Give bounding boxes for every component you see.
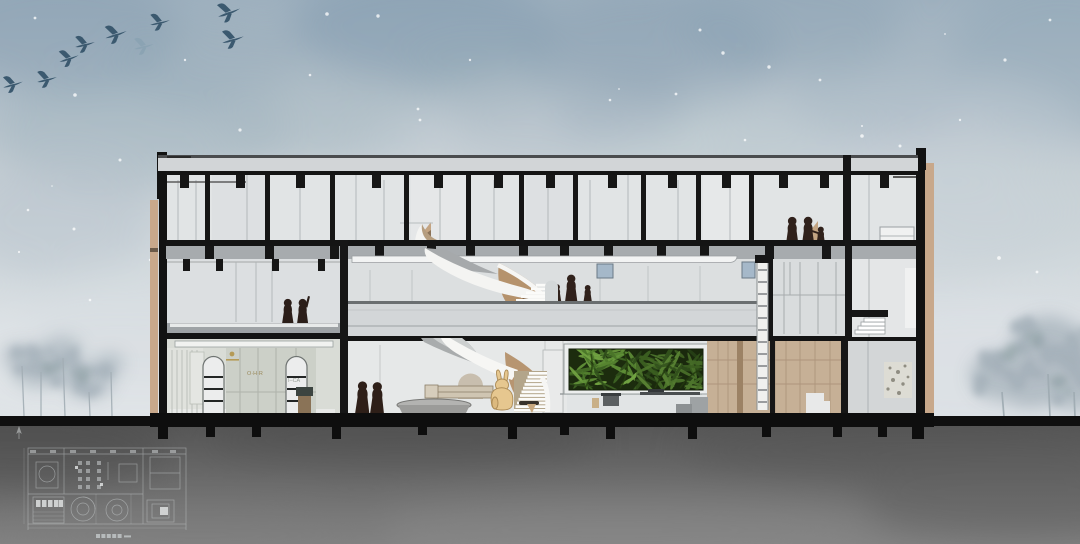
svg-text:O·H·R: O·H·R xyxy=(247,371,263,377)
svg-text:I–CA: I–CA xyxy=(288,378,301,384)
